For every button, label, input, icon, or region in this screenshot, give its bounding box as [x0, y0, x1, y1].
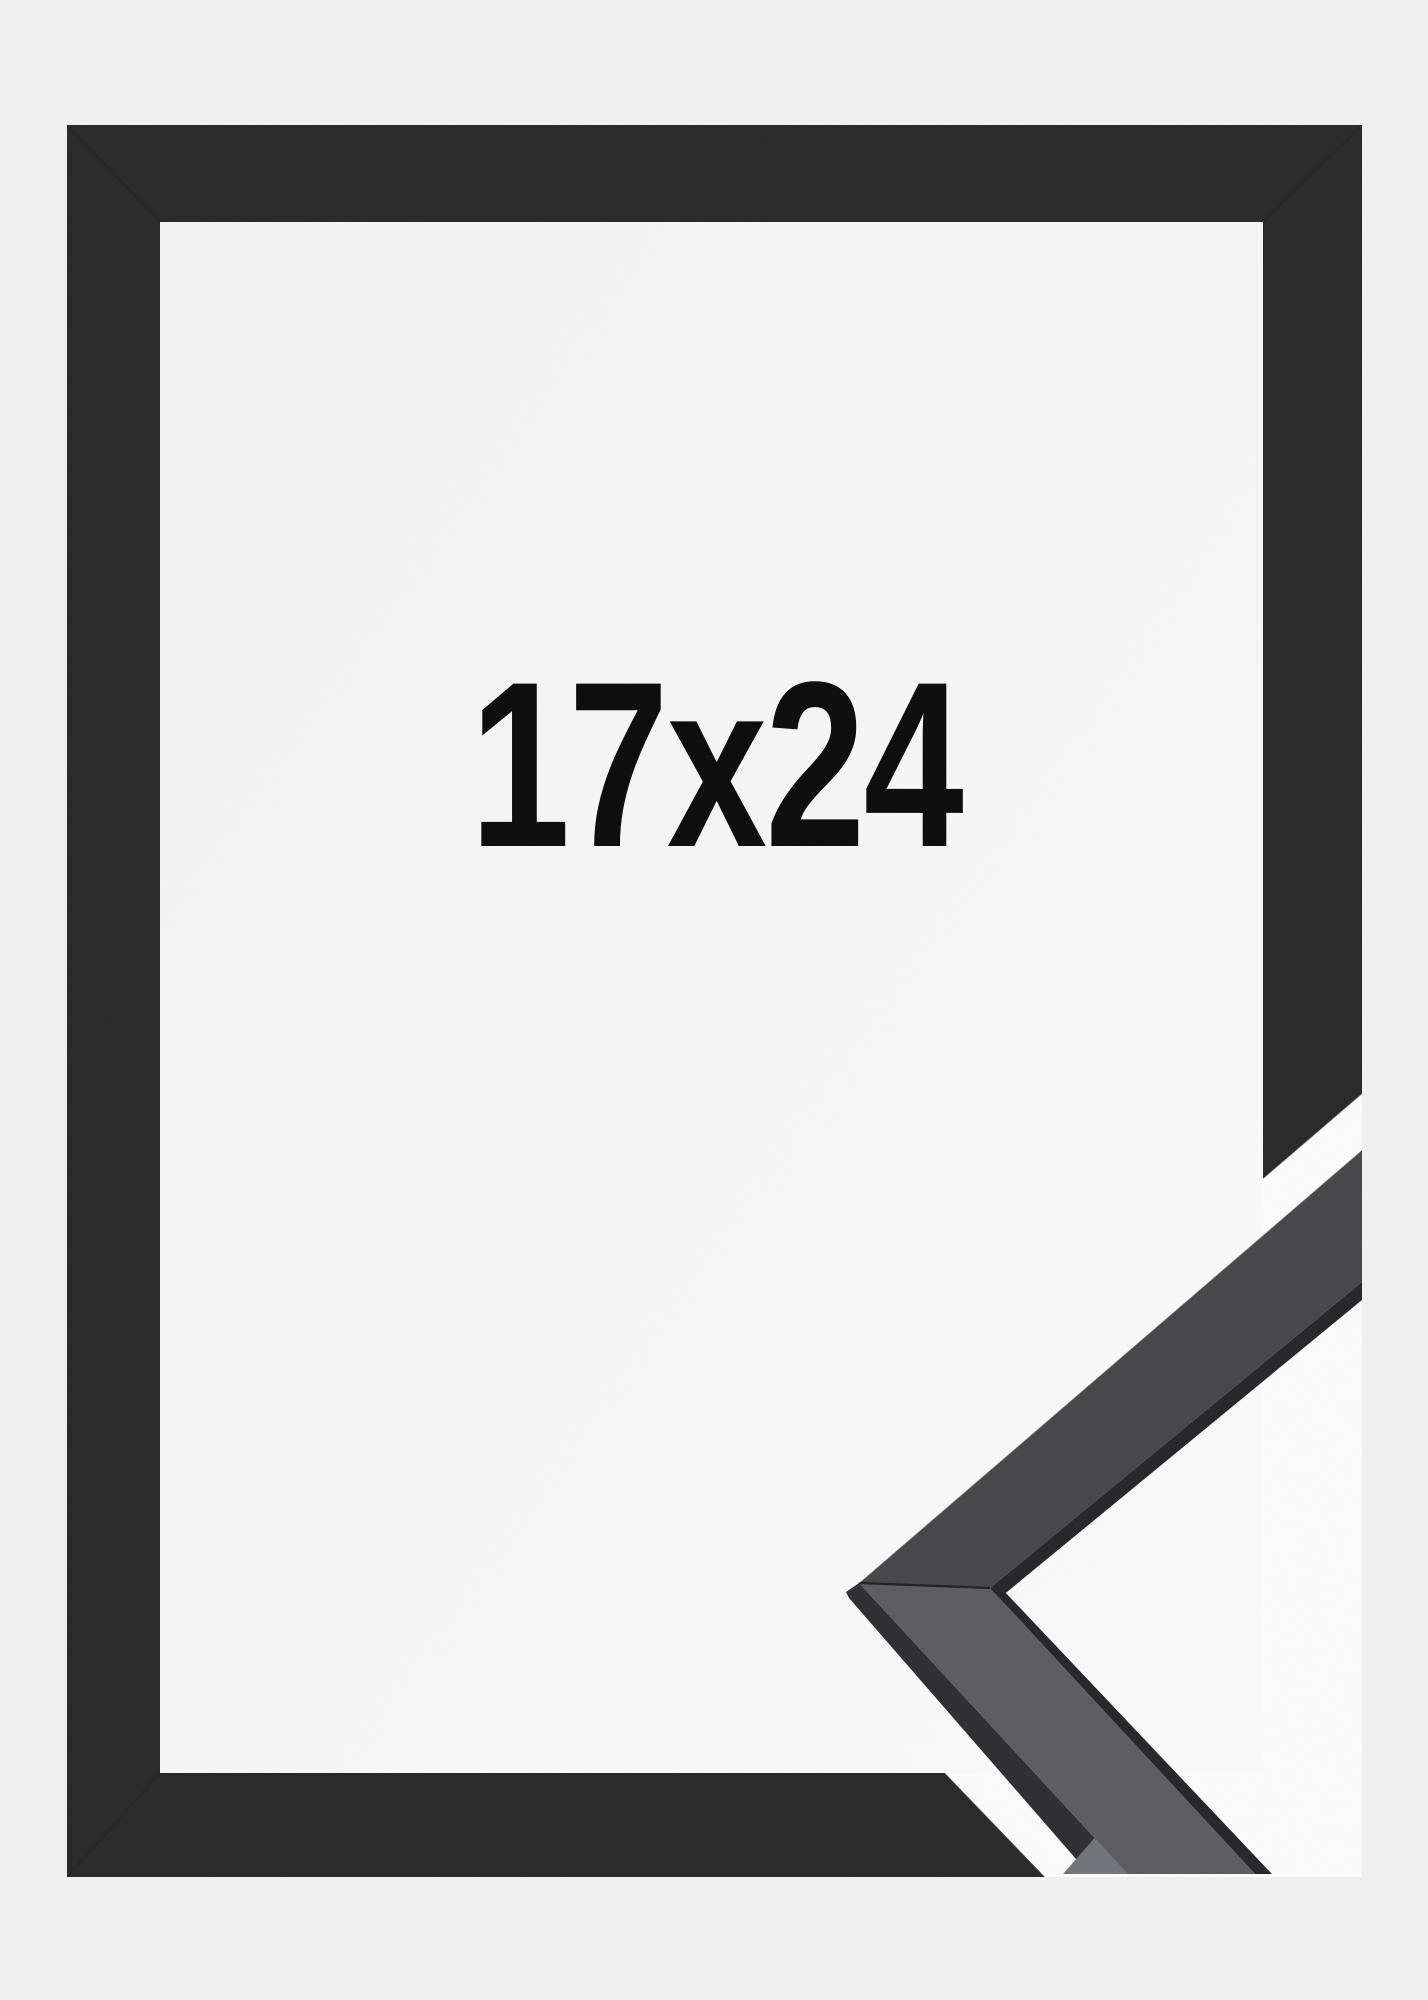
frame-product-image: 17x24: [0, 0, 1428, 2000]
photo-grain-overlay: [0, 0, 1428, 2000]
product-photo-frame-17x24: 17x24: [0, 0, 1428, 2000]
